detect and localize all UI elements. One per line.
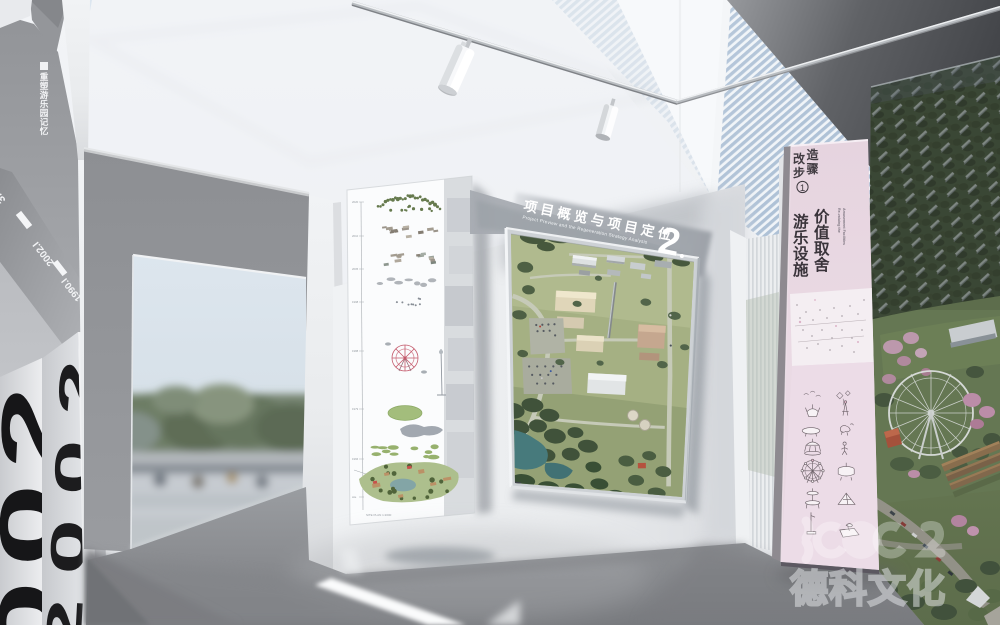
svg-text:Amusement Facilities: Amusement Facilities xyxy=(842,208,846,245)
svg-text:1966: 1966 xyxy=(352,457,359,461)
svg-text:步: 步 xyxy=(793,165,805,180)
svg-text:改: 改 xyxy=(793,151,806,166)
svg-text:2010: 2010 xyxy=(352,234,359,238)
svg-text:SITE PLAN 1:2000: SITE PLAN 1:2000 xyxy=(366,513,392,517)
svg-text:造: 造 xyxy=(807,147,820,162)
svg-text:价: 价 xyxy=(814,208,830,226)
svg-text:骤: 骤 xyxy=(807,161,819,176)
svg-text:设: 设 xyxy=(793,245,809,263)
svg-text:游: 游 xyxy=(793,212,809,231)
svg-text:舍: 舍 xyxy=(813,255,830,274)
svg-text:1998: 1998 xyxy=(352,300,359,304)
svg-text:1: 1 xyxy=(800,183,805,194)
svg-text:忆: 忆 xyxy=(40,125,49,136)
svg-text:2005: 2005 xyxy=(352,267,359,271)
svg-text:值: 值 xyxy=(814,223,830,242)
svg-text:取: 取 xyxy=(814,240,830,258)
svg-text:1979: 1979 xyxy=(352,407,359,411)
svg-text:施: 施 xyxy=(793,260,809,279)
svg-text:site: site xyxy=(352,495,357,499)
svg-text:德科文化: 德科文化 xyxy=(790,569,946,611)
svg-text:Re-valuing the: Re-valuing the xyxy=(837,208,841,233)
svg-text:2020: 2020 xyxy=(352,200,359,204)
svg-text:乐: 乐 xyxy=(793,229,809,247)
svg-text:1988: 1988 xyxy=(352,349,359,353)
